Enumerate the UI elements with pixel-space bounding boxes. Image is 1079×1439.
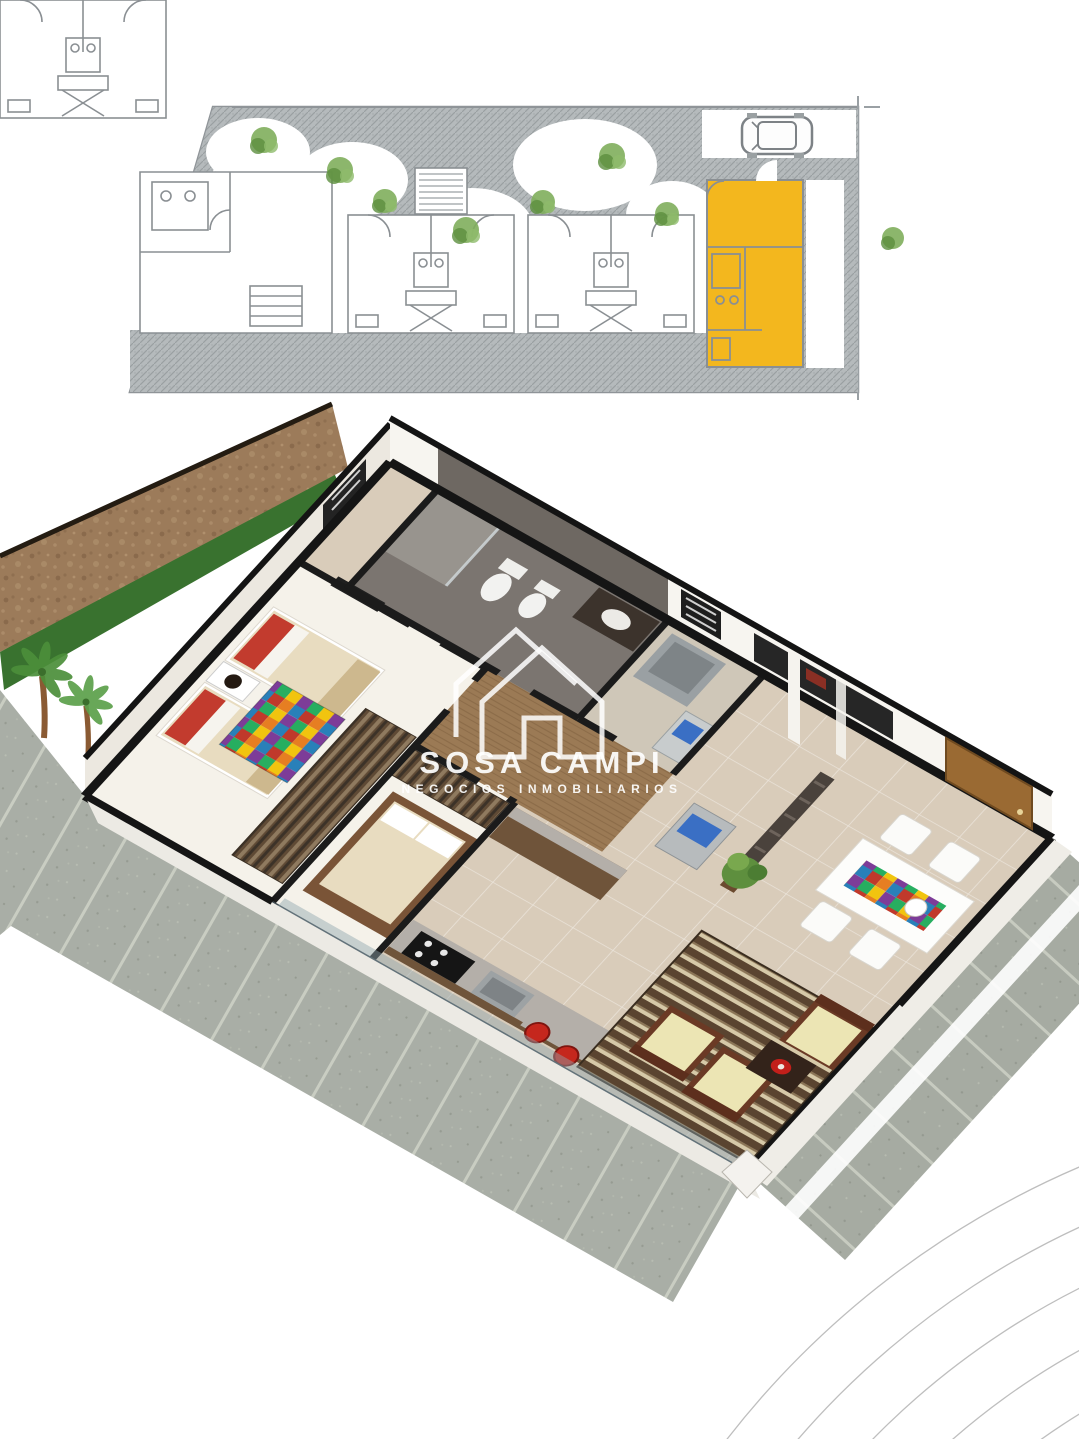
brand-name: SOSA CAMPI <box>419 745 664 780</box>
parking-car-icon <box>742 113 812 158</box>
tree-icon <box>881 227 904 250</box>
sheet-canvas: SOSA CAMPI NEGOCIOS INMOBILIARIOS <box>0 0 1079 1439</box>
stairs-icon <box>415 168 467 214</box>
apartment-render <box>0 404 1079 1302</box>
unit-outline <box>0 0 166 118</box>
highlighted-unit <box>707 160 844 368</box>
brand-tagline: NEGOCIOS INMOBILIARIOS <box>401 782 682 796</box>
presentation-sheet: SOSA CAMPI NEGOCIOS INMOBILIARIOS <box>0 0 1079 1439</box>
site-plan <box>0 0 904 400</box>
